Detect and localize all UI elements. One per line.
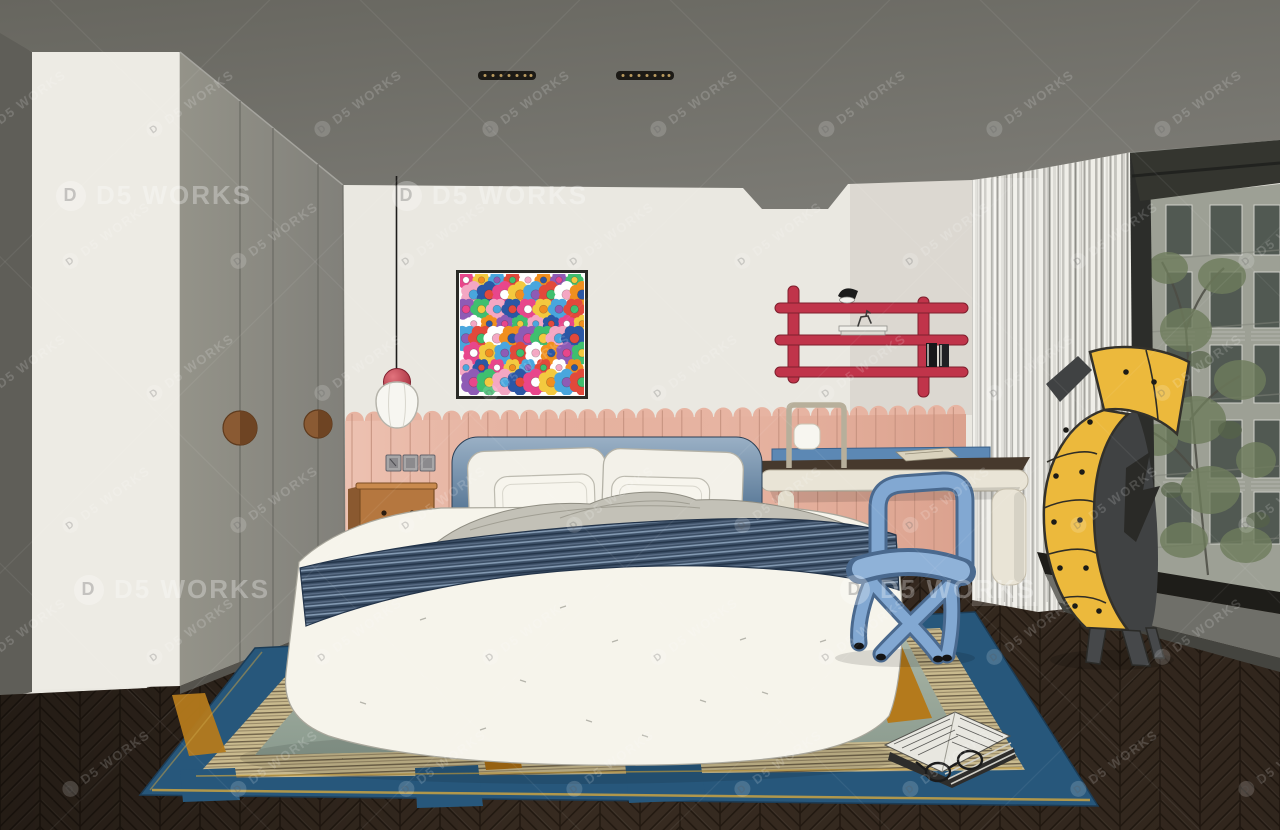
scene-canvas [0,0,1280,830]
wall-shade [850,175,972,415]
side-wall-sliver [0,30,32,699]
flower-artwork [452,270,594,399]
bedroom-render: DD5 WORKSDD5 WORKSDD5 WORKSDD5 WORKSDD5 … [0,0,1280,830]
pendant-shade [376,382,418,428]
wardrobe-white-panel [32,52,180,690]
